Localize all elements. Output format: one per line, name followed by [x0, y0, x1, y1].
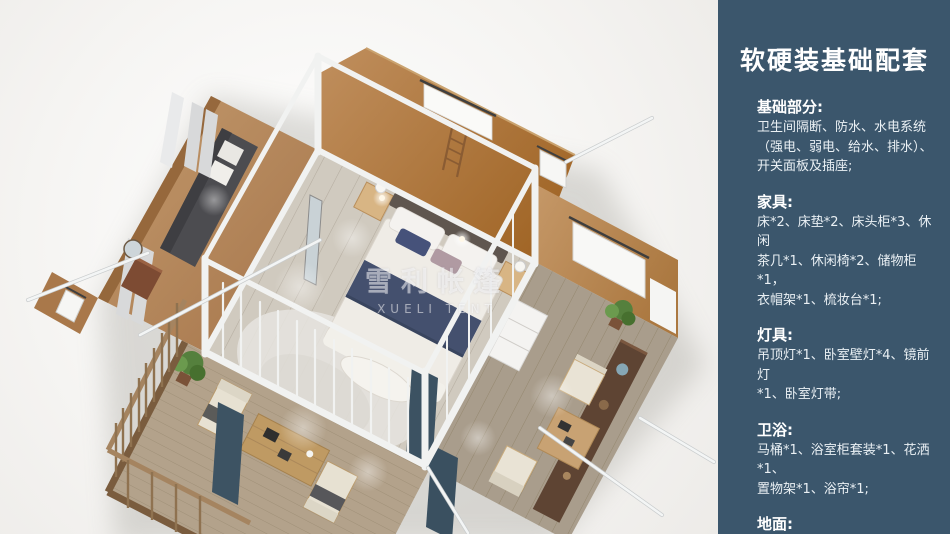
section-heading: 家具:: [757, 191, 934, 213]
panel-title: 软硬装基础配套: [740, 44, 938, 78]
section-heading: 地面:: [757, 513, 934, 534]
floorplan-3d-render: [0, 0, 718, 534]
section-body: 吊顶灯*1、卧室壁灯*4、镜前灯 *1、卧室灯带;: [757, 346, 934, 405]
floorplan-canvas: 雪利帐篷 XUELI TENT: [0, 0, 718, 534]
slide: 雪利帐篷 XUELI TENT 软硬装基础配套 基础部分: 卫生间隔断、防水、水…: [0, 0, 950, 534]
spec-section-bathroom: 卫浴: 马桶*1、浴室柜套装*1、花洒*1、 置物架*1、浴帘*1;: [757, 419, 934, 500]
section-heading: 基础部分:: [757, 96, 934, 118]
spec-sections: 基础部分: 卫生间隔断、防水、水电系统 （强电、弱电、给水、排水）、 开关面板及…: [740, 96, 938, 534]
spec-section-basics: 基础部分: 卫生间隔断、防水、水电系统 （强电、弱电、给水、排水）、 开关面板及…: [757, 96, 934, 177]
section-body: 马桶*1、浴室柜套装*1、花洒*1、 置物架*1、浴帘*1;: [757, 441, 934, 500]
spec-section-flooring: 地面: 强化木地板、卫生间防滑防潮石 塑板;: [757, 513, 934, 534]
spec-panel: 软硬装基础配套 基础部分: 卫生间隔断、防水、水电系统 （强电、弱电、给水、排水…: [718, 0, 950, 534]
spec-section-furniture: 家具: 床*2、床垫*2、床头柜*3、休闲 茶几*1、休闲椅*2、储物柜*1， …: [757, 191, 934, 311]
spec-section-lighting: 灯具: 吊顶灯*1、卧室壁灯*4、镜前灯 *1、卧室灯带;: [757, 324, 934, 405]
section-heading: 卫浴:: [757, 419, 934, 441]
section-heading: 灯具:: [757, 324, 934, 346]
section-body: 床*2、床垫*2、床头柜*3、休闲 茶几*1、休闲椅*2、储物柜*1， 衣帽架*…: [757, 213, 934, 311]
section-body: 卫生间隔断、防水、水电系统 （强电、弱电、给水、排水）、 开关面板及插座;: [757, 118, 934, 177]
